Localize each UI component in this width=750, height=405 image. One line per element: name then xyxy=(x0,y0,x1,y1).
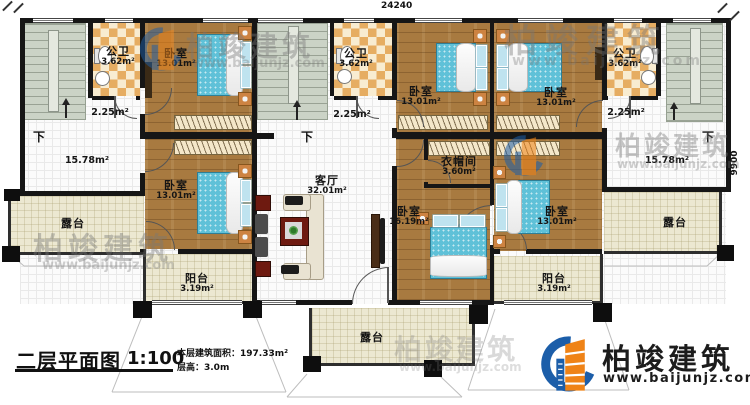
window xyxy=(673,18,711,23)
wall xyxy=(602,128,607,187)
nightstand xyxy=(496,29,510,43)
column xyxy=(133,301,152,318)
bed-pillow xyxy=(476,45,487,67)
room-label-bedroom-top-right: 卧室 13.01m² xyxy=(520,87,592,109)
brand-logo-block: 柏竣建筑 www.baijunjz.com xyxy=(536,330,750,400)
window xyxy=(33,18,73,23)
room-label-balcony-left: 阳台 3.19m² xyxy=(161,273,233,295)
bed-pillow xyxy=(241,42,251,64)
wall xyxy=(604,251,722,254)
bed-pillow xyxy=(241,66,251,88)
window xyxy=(518,18,563,23)
stair-down-label: 下 xyxy=(702,128,714,145)
sofa-cushion xyxy=(281,265,299,274)
column xyxy=(593,303,612,322)
room-label-hall-left: 2.25m² xyxy=(74,108,146,119)
bed-blanket xyxy=(430,255,487,277)
room-label-bedroom-top-left: 卧室 13.01m² xyxy=(140,48,212,70)
stair-down-label: 下 xyxy=(301,128,313,145)
stair-railing xyxy=(690,28,701,104)
nightstand xyxy=(238,92,252,106)
column xyxy=(2,246,20,262)
wall xyxy=(396,132,602,139)
room-label-lobby-left: 15.78m² xyxy=(51,156,123,167)
floor-plan: 公卫 3.62m² 公卫 3.62m² 公卫 3.62m² 2.25m² 2.2… xyxy=(0,0,750,405)
room-label-lobby-right: 15.78m² xyxy=(631,156,703,167)
nightstand xyxy=(496,92,510,106)
room-label-bath-mid: 公卫 3.62m² xyxy=(320,48,392,70)
wall xyxy=(252,133,274,139)
bed-pillow xyxy=(460,215,485,227)
window xyxy=(258,18,303,23)
room-label-hall-right: 2.25m² xyxy=(590,108,662,119)
room-label-bedroom-master: 卧室 16.19m² xyxy=(373,206,445,228)
nightstand xyxy=(473,92,487,106)
bed xyxy=(522,43,562,92)
room-label-bedroom-top-mid: 卧室 13.01m² xyxy=(385,86,457,108)
sink-icon xyxy=(641,70,656,85)
wall xyxy=(178,249,252,254)
wall xyxy=(334,96,356,100)
sink-icon xyxy=(337,69,352,84)
plant-icon xyxy=(289,226,298,235)
wall xyxy=(388,300,420,305)
window xyxy=(344,18,374,23)
column xyxy=(303,356,321,372)
wall xyxy=(20,18,25,196)
nightstand xyxy=(238,164,252,178)
title-underline xyxy=(15,369,173,372)
bed-pillow xyxy=(497,68,508,90)
nightstand xyxy=(238,230,252,244)
bed-pillow xyxy=(241,204,251,226)
sofa-cushion xyxy=(285,196,303,205)
column xyxy=(243,301,262,318)
column xyxy=(424,360,442,377)
bed-blanket xyxy=(506,180,522,234)
window xyxy=(260,300,296,305)
stair-direction-arrow xyxy=(670,98,678,109)
bed-pillow xyxy=(476,68,487,90)
window xyxy=(504,300,592,305)
room-label-bedroom-bottom-left: 卧室 13.01m² xyxy=(140,180,212,202)
nightstand xyxy=(238,26,252,40)
dimension-right: 9900 xyxy=(730,143,740,183)
room-label-terrace-left: 露台 xyxy=(37,218,109,230)
side-table xyxy=(255,195,271,211)
room-label-balcony-right: 阳台 3.19m² xyxy=(518,273,590,295)
column xyxy=(469,305,488,324)
room-label-cloakroom: 衣帽间 3.60m² xyxy=(423,156,495,178)
room-label-hall-mid: 2.25m² xyxy=(316,110,388,121)
floor-area-note: 本层建筑面积：197.33m² xyxy=(177,346,288,359)
bed-blanket xyxy=(508,43,528,92)
wall xyxy=(296,300,352,305)
brand-url: www.baijunjz.com xyxy=(603,371,750,386)
armchair xyxy=(255,214,268,234)
room-label-bath-right: 公卫 3.62m² xyxy=(589,48,661,70)
nightstand xyxy=(493,235,506,248)
room-label-terrace-bottom: 露台 xyxy=(336,332,408,344)
wall xyxy=(143,254,146,304)
wall xyxy=(602,187,731,192)
wall xyxy=(92,96,114,100)
wall xyxy=(719,192,722,253)
column xyxy=(4,189,20,201)
column xyxy=(717,245,734,261)
wall xyxy=(392,166,397,300)
room-label-living: 客厅 32.01m² xyxy=(291,175,363,197)
stair-railing xyxy=(48,30,59,112)
title-block: 二层平面图 1:100 本层建筑面积：197.33m² 层高：3.0m xyxy=(0,340,300,400)
drawing-scale: 1:100 xyxy=(127,348,184,369)
sink-icon xyxy=(95,71,110,86)
wall xyxy=(526,249,602,254)
bed-blanket xyxy=(456,43,476,92)
nightstand xyxy=(473,29,487,43)
window xyxy=(415,18,462,23)
room-label-terrace-right: 露台 xyxy=(639,217,711,229)
armchair xyxy=(255,237,268,257)
bed-pillow xyxy=(241,180,251,202)
window xyxy=(152,300,242,305)
wall xyxy=(424,184,490,188)
stair-direction-arrow xyxy=(62,94,70,105)
stair-direction-arrow xyxy=(293,96,301,107)
window xyxy=(203,18,248,23)
bed-pillow xyxy=(497,45,508,67)
wall xyxy=(20,191,145,196)
stair-down-label: 下 xyxy=(33,128,45,145)
bed-pillow xyxy=(496,184,507,207)
wall xyxy=(8,252,144,255)
wall xyxy=(630,96,658,100)
wall xyxy=(145,132,252,139)
side-table xyxy=(255,261,271,277)
door-leaf xyxy=(387,267,389,303)
wall xyxy=(309,363,475,366)
window xyxy=(420,300,472,305)
floor-height-note: 层高：3.0m xyxy=(177,360,229,373)
window xyxy=(614,18,642,23)
bed-pillow xyxy=(496,208,507,231)
window xyxy=(105,18,133,23)
wall xyxy=(490,18,494,139)
room-label-bedroom-bottom-right: 卧室 13.01m² xyxy=(521,206,593,228)
stair-railing xyxy=(288,26,299,104)
wall xyxy=(600,254,603,304)
dimension-top: 24240 xyxy=(381,1,412,11)
brand-logo-icon xyxy=(538,332,596,396)
